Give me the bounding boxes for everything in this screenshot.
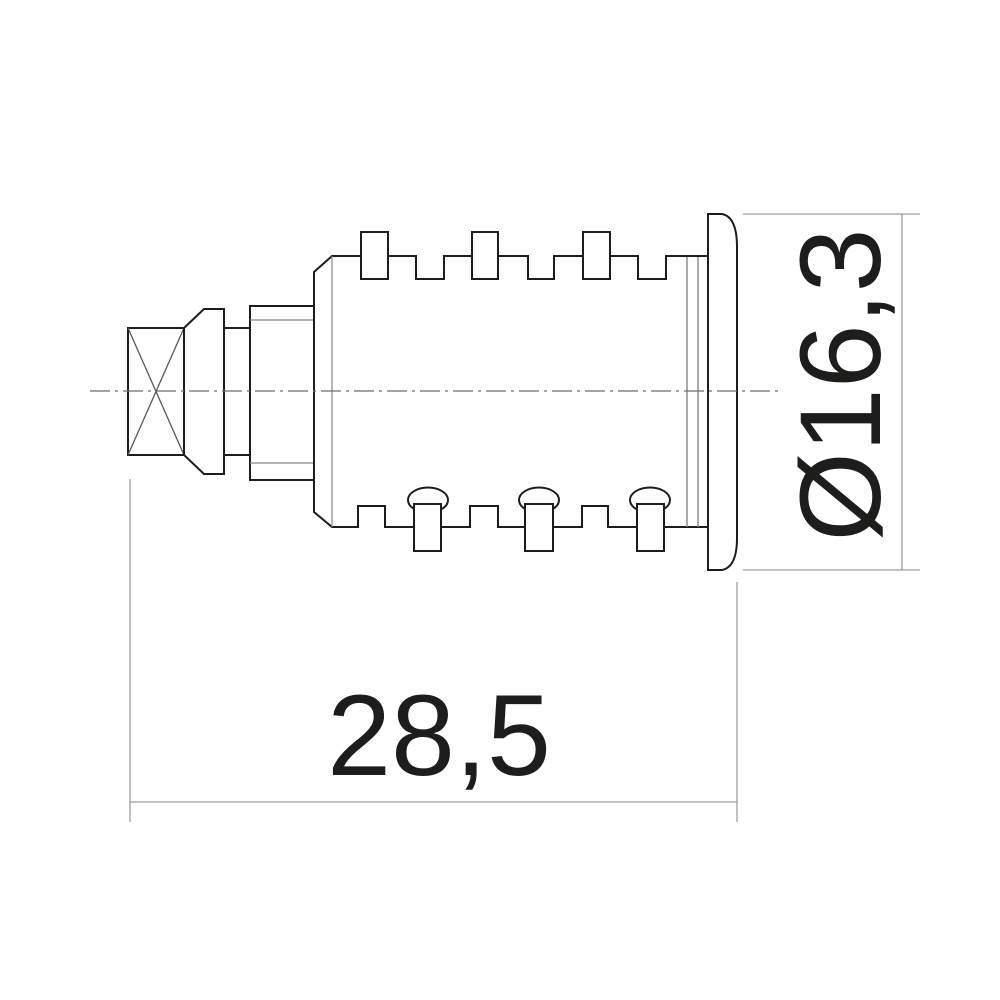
bottom-pin-3 xyxy=(637,504,664,551)
plug-section xyxy=(250,306,314,480)
bottom-pin-1 xyxy=(414,504,441,551)
length-dimension-label: 28,5 xyxy=(327,672,551,800)
drawing-svg: 28,5 Ø16,3 xyxy=(0,0,1000,1000)
plug-outline xyxy=(250,306,314,480)
top-tab-2 xyxy=(472,232,498,279)
cylinder-part xyxy=(128,214,737,570)
technical-drawing: 28,5 Ø16,3 xyxy=(0,0,1000,1000)
top-tab-1 xyxy=(361,232,388,279)
front-flange xyxy=(708,214,737,570)
bottom-pin-2 xyxy=(525,504,553,551)
top-tab-3 xyxy=(583,232,610,279)
diameter-dimension-label: Ø16,3 xyxy=(777,228,905,541)
